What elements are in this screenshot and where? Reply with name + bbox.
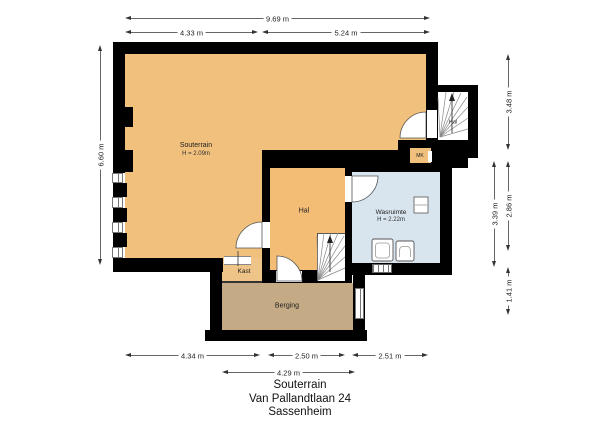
dimension-label: 5.24 m	[332, 28, 361, 37]
room-label-kast: Kast	[237, 268, 250, 276]
dimension-label: 6.60 m	[96, 141, 105, 170]
wall-left-upper	[113, 42, 125, 173]
dimension-label: 3.39 m	[490, 200, 499, 229]
dimension-right-middle-inner: 2.86 m	[504, 161, 513, 251]
basement-window-icon	[112, 197, 123, 208]
dimension-bottom-souterrain: 4.34 m	[125, 351, 260, 360]
dimension-label: 2.51 m	[376, 351, 405, 360]
wall-top	[113, 42, 438, 54]
basement-window-icon	[112, 222, 123, 233]
room-name: Berging	[275, 303, 299, 312]
door-hal-berging	[276, 271, 302, 282]
room-label-berging: Berging	[275, 303, 299, 312]
room-label-meterkast: MK	[416, 153, 424, 159]
title-floor: Souterrain	[0, 379, 600, 393]
dimension-label: 4.33 m	[177, 28, 206, 37]
meterkast-door	[428, 151, 432, 162]
room-label-souterrain: Souterrain H = 2.09m	[180, 142, 212, 158]
wall-bottom-left	[113, 258, 223, 272]
dimension-label: 2.50 m	[292, 351, 321, 360]
room-label-hal-upper: Hal	[449, 120, 457, 127]
wall-stub	[113, 233, 127, 247]
door-souterrain-stairhal	[427, 110, 437, 138]
room-name: MK	[416, 153, 424, 159]
door-hal-wasruimte	[345, 176, 352, 202]
room-name: Hal	[449, 120, 457, 127]
room-height: H = 2.22m	[376, 217, 407, 225]
room-name: Souterrain	[180, 142, 212, 151]
dimension-bottom-hal: 2.50 m	[268, 351, 345, 360]
floor-plan: Souterrain H = 2.09m Hal Hal Wasruimte H…	[0, 0, 600, 424]
dimension-label: 3.48 m	[504, 88, 513, 117]
dimension-right-upper: 3.48 m	[504, 54, 513, 150]
room-name: Wasruimte	[376, 209, 407, 217]
room-name: Hal	[299, 208, 310, 217]
basement-window-icon	[112, 173, 123, 183]
dimension-label: 4.34 m	[178, 351, 207, 360]
dimension-label: 2.86 m	[504, 192, 513, 221]
stairwell-upper	[438, 92, 468, 140]
dimension-height-left: 6.60 m	[96, 45, 105, 265]
room-label-wasruimte: Wasruimte H = 2.22m	[376, 209, 407, 225]
wall-wasruimte-bottom	[345, 263, 452, 275]
wall-wasruimte-right	[440, 157, 452, 275]
room-label-hal: Hal	[299, 208, 310, 217]
wall-berging-bottom	[205, 330, 367, 341]
dimension-label: 9.69 m	[263, 14, 292, 23]
dimension-label: 1.41 m	[504, 277, 513, 306]
door-kast	[224, 256, 251, 265]
dimension-bottom-berging: 4.29 m	[222, 368, 355, 377]
berging-window-icon	[355, 288, 364, 319]
stairwell-lower	[317, 233, 345, 281]
wall-stub	[113, 208, 127, 222]
dimension-width-right: 5.24 m	[262, 28, 430, 37]
wall-kast-divider	[222, 281, 262, 283]
room-name: Kast	[237, 268, 250, 276]
dimension-bottom-wasruimte: 2.51 m	[352, 351, 428, 360]
basement-window-icon	[112, 247, 123, 258]
wall-stub	[113, 183, 127, 197]
title-address: Van Pallandtlaan 24	[0, 393, 600, 407]
title-block: Souterrain Van Pallandtlaan 24 Sassenhei…	[0, 379, 600, 420]
wall-pilaster	[125, 107, 133, 127]
title-city: Sassenheim	[0, 406, 600, 420]
wall-pilaster	[125, 150, 133, 172]
wall-hal-left	[262, 150, 270, 283]
dimension-width-left: 4.33 m	[125, 28, 258, 37]
dimension-total-width: 9.69 m	[125, 14, 430, 23]
dimension-label: 4.29 m	[274, 368, 303, 377]
wall-wasruimte-top	[345, 157, 452, 172]
room-height: H = 2.09m	[180, 151, 212, 159]
dimension-right-lower: 1.41 m	[504, 267, 513, 315]
door-souterrain-hal	[262, 222, 270, 248]
vent-icon	[372, 264, 392, 273]
dimension-right-middle-outer: 3.39 m	[490, 161, 499, 267]
